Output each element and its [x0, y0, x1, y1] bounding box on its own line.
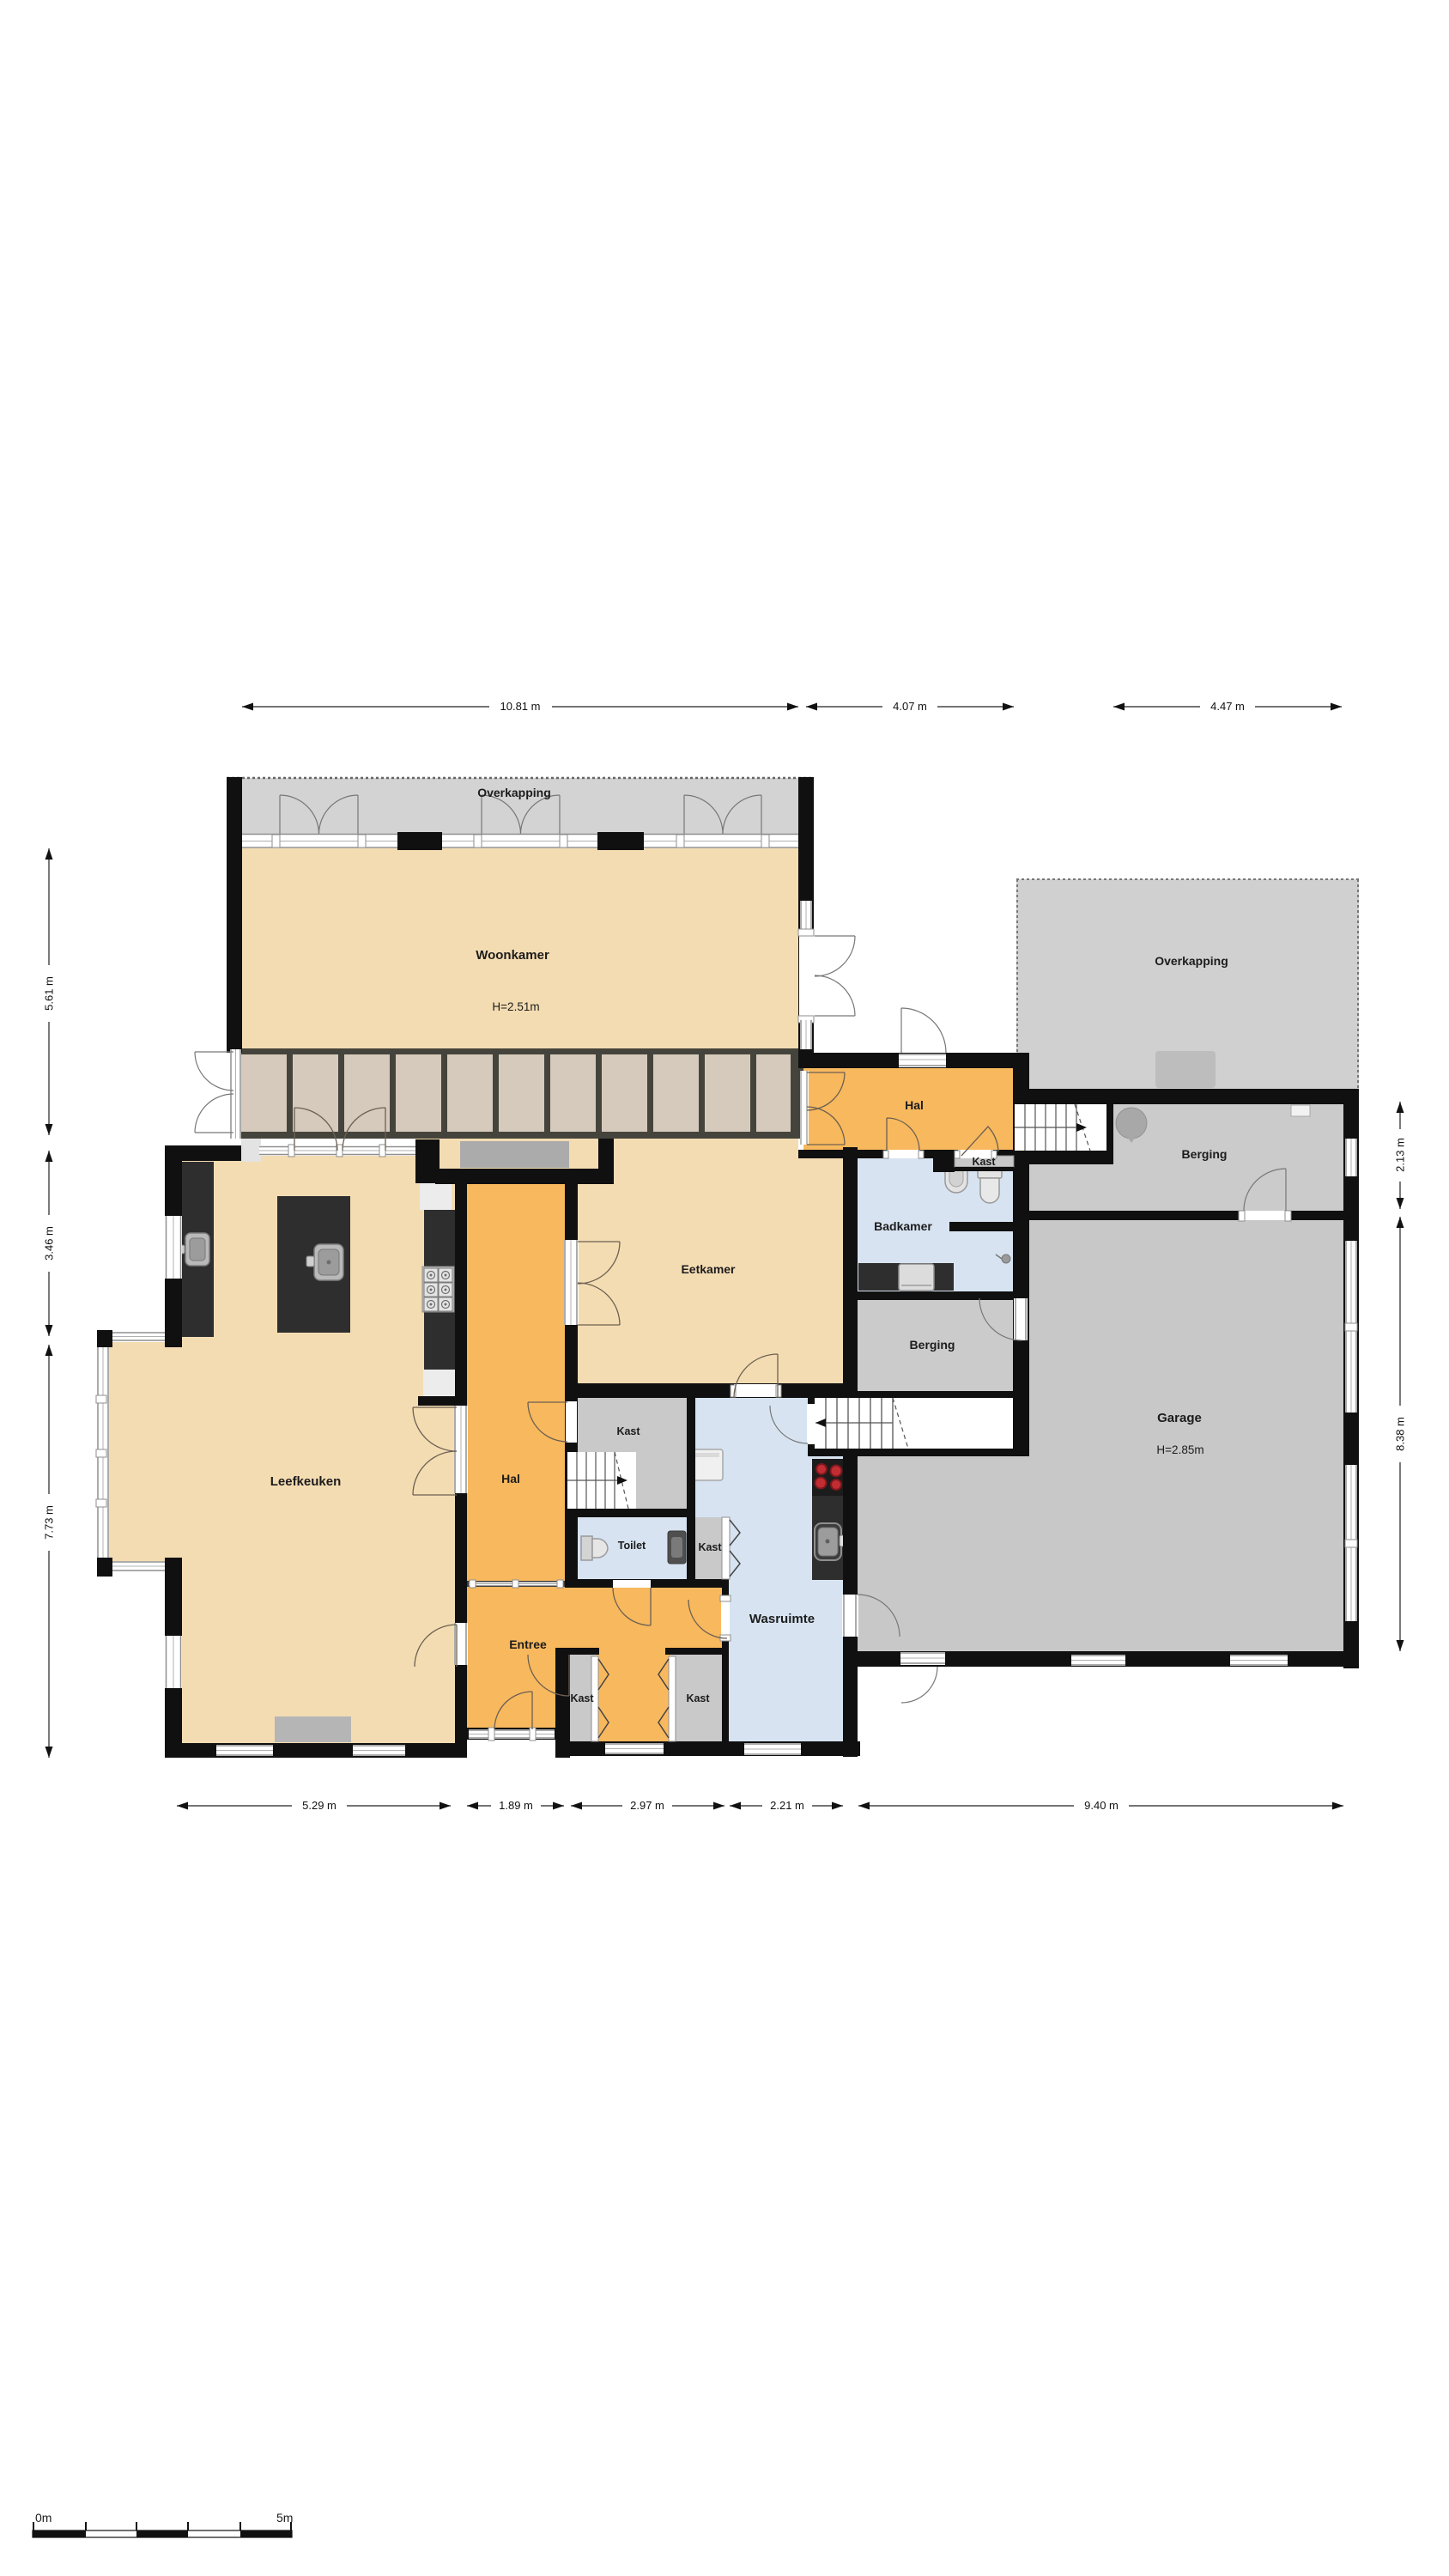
- svg-text:H=2.51m: H=2.51m: [492, 1000, 539, 1013]
- svg-text:Hal: Hal: [905, 1098, 924, 1112]
- svg-text:3.46 m: 3.46 m: [43, 1226, 56, 1261]
- svg-text:10.81 m: 10.81 m: [500, 700, 541, 713]
- svg-text:Entree: Entree: [509, 1637, 547, 1651]
- svg-text:Toilet: Toilet: [618, 1540, 646, 1552]
- svg-text:4.47 m: 4.47 m: [1210, 700, 1245, 713]
- svg-text:Woonkamer: Woonkamer: [476, 948, 549, 963]
- svg-text:Kast: Kast: [686, 1692, 710, 1704]
- svg-text:7.73 m: 7.73 m: [43, 1505, 56, 1540]
- svg-text:9.40 m: 9.40 m: [1084, 1799, 1119, 1812]
- svg-text:Badkamer: Badkamer: [874, 1219, 932, 1233]
- svg-text:Kast: Kast: [616, 1425, 640, 1437]
- svg-text:Berging: Berging: [910, 1338, 955, 1352]
- svg-text:H=2.85m: H=2.85m: [1156, 1443, 1203, 1456]
- svg-text:Overkapping: Overkapping: [1155, 954, 1228, 968]
- svg-text:8.38 m: 8.38 m: [1394, 1417, 1407, 1451]
- svg-text:2.97 m: 2.97 m: [630, 1799, 664, 1812]
- svg-text:5.29 m: 5.29 m: [302, 1799, 336, 1812]
- svg-text:Hal: Hal: [501, 1472, 520, 1485]
- svg-text:0m: 0m: [35, 2511, 52, 2524]
- svg-text:5.61 m: 5.61 m: [43, 976, 56, 1011]
- svg-text:2.21 m: 2.21 m: [770, 1799, 804, 1812]
- svg-text:Kast: Kast: [698, 1541, 722, 1553]
- svg-text:Berging: Berging: [1182, 1147, 1228, 1161]
- svg-text:4.07 m: 4.07 m: [893, 700, 927, 713]
- svg-text:Overkapping: Overkapping: [477, 786, 551, 799]
- svg-text:Eetkamer: Eetkamer: [681, 1262, 736, 1276]
- svg-text:1.89 m: 1.89 m: [499, 1799, 533, 1812]
- svg-text:Kast: Kast: [972, 1156, 996, 1168]
- svg-text:Leefkeuken: Leefkeuken: [270, 1474, 342, 1489]
- svg-text:2.13 m: 2.13 m: [1394, 1138, 1407, 1172]
- svg-text:Wasruimte: Wasruimte: [749, 1612, 815, 1626]
- svg-text:Kast: Kast: [570, 1692, 594, 1704]
- svg-text:Garage: Garage: [1157, 1411, 1202, 1425]
